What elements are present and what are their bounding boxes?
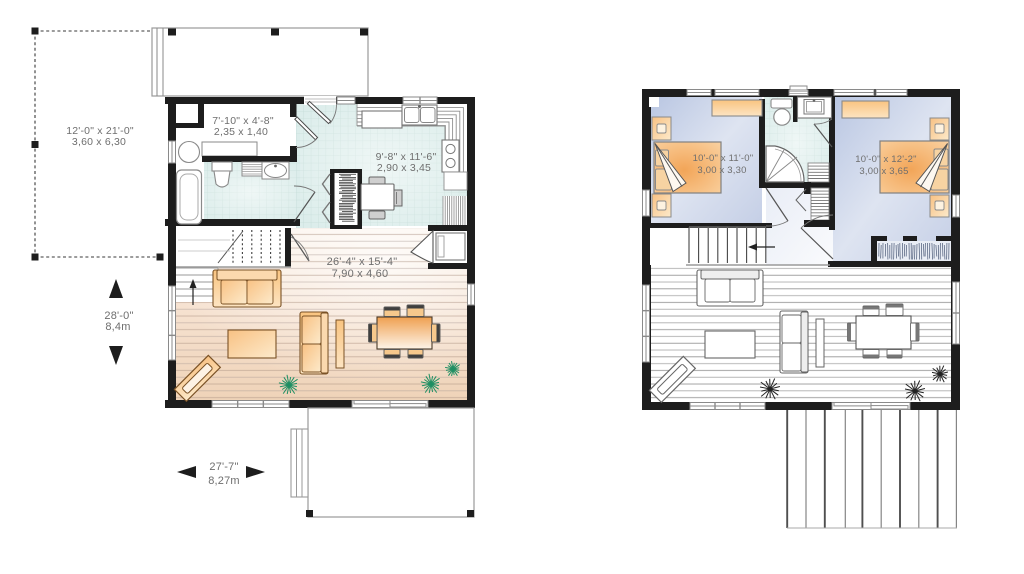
svg-text:8,4m: 8,4m <box>105 321 130 333</box>
svg-text:2,90 x 3,45: 2,90 x 3,45 <box>377 162 431 174</box>
svg-text:3,00 x 3,30: 3,00 x 3,30 <box>697 165 746 176</box>
svg-text:2,35 x 1,40: 2,35 x 1,40 <box>214 126 268 138</box>
svg-text:10'-0" x 11'-0": 10'-0" x 11'-0" <box>693 153 754 164</box>
svg-text:8,27m: 8,27m <box>208 475 240 487</box>
svg-text:27'-7": 27'-7" <box>209 461 238 473</box>
svg-text:26'-4" x 15'-4": 26'-4" x 15'-4" <box>327 256 398 268</box>
svg-text:10'-0" x 12'-2": 10'-0" x 12'-2" <box>855 154 916 165</box>
svg-text:3,60 x 6,30: 3,60 x 6,30 <box>72 136 126 148</box>
svg-text:3,00 x 3,65: 3,00 x 3,65 <box>859 166 908 177</box>
svg-text:7,90 x 4,60: 7,90 x 4,60 <box>332 268 389 280</box>
